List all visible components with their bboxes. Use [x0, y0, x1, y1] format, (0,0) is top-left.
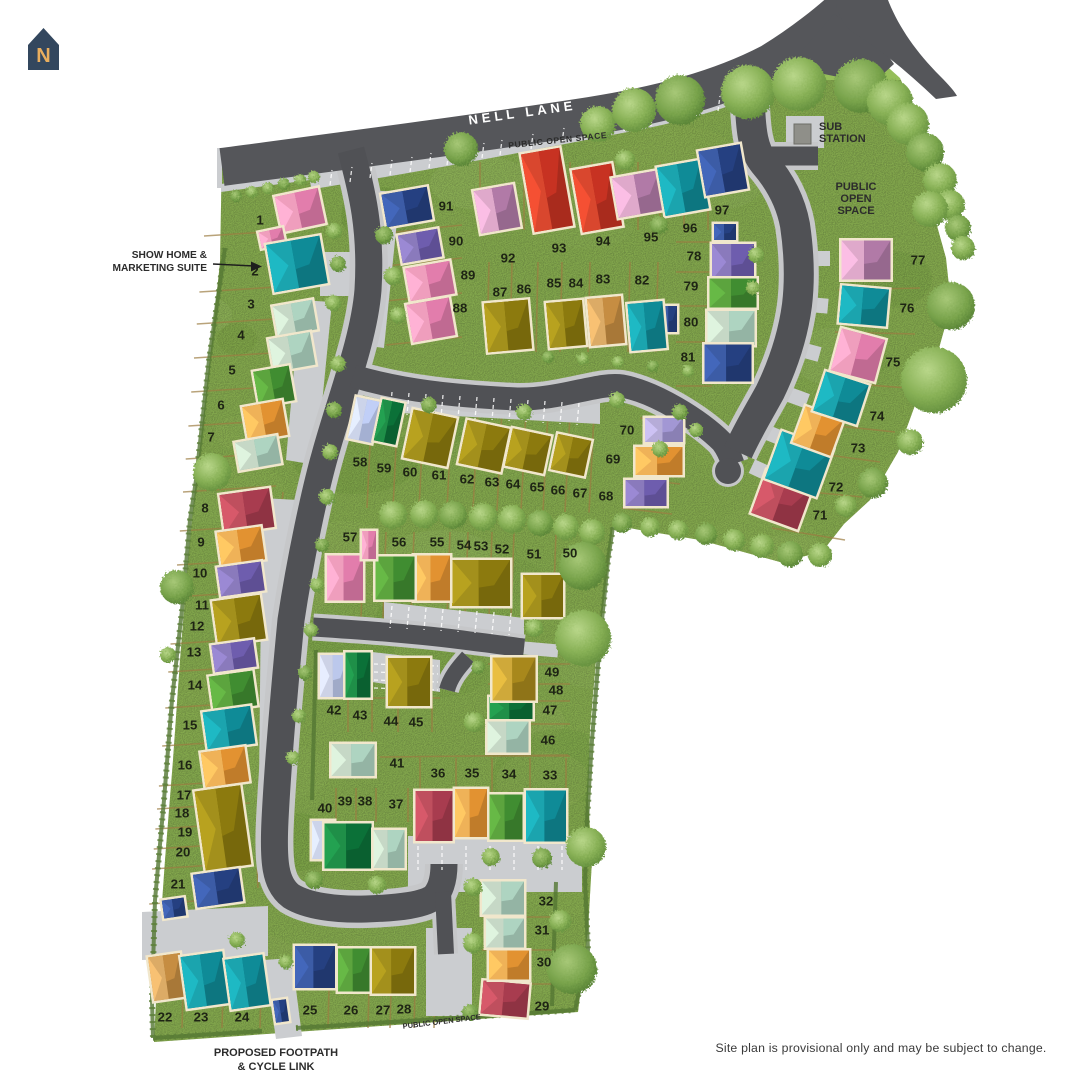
svg-text:12: 12 — [190, 619, 205, 634]
svg-text:STATION: STATION — [819, 133, 866, 145]
svg-text:81: 81 — [681, 350, 696, 365]
svg-text:45: 45 — [409, 715, 424, 730]
svg-text:25: 25 — [303, 1003, 318, 1018]
svg-text:78: 78 — [687, 249, 702, 264]
svg-text:22: 22 — [158, 1010, 173, 1025]
svg-text:PROPOSED FOOTPATH: PROPOSED FOOTPATH — [214, 1047, 338, 1059]
svg-text:52: 52 — [495, 542, 510, 557]
svg-text:51: 51 — [527, 547, 542, 562]
svg-text:77: 77 — [911, 253, 926, 268]
svg-text:63: 63 — [485, 475, 500, 490]
svg-text:76: 76 — [900, 301, 915, 316]
svg-text:95: 95 — [644, 230, 659, 245]
svg-text:10: 10 — [193, 566, 208, 581]
svg-text:34: 34 — [502, 767, 517, 782]
svg-text:91: 91 — [439, 199, 454, 214]
svg-text:55: 55 — [430, 535, 445, 550]
svg-text:48: 48 — [549, 683, 564, 698]
svg-text:80: 80 — [684, 315, 699, 330]
svg-text:PUBLIC: PUBLIC — [836, 181, 877, 193]
svg-text:23: 23 — [194, 1010, 209, 1025]
svg-text:42: 42 — [327, 703, 342, 718]
svg-text:58: 58 — [353, 455, 368, 470]
svg-text:33: 33 — [543, 768, 558, 783]
svg-text:64: 64 — [506, 477, 521, 492]
svg-text:32: 32 — [539, 894, 554, 909]
svg-text:94: 94 — [596, 234, 611, 249]
svg-text:85: 85 — [547, 276, 562, 291]
svg-text:67: 67 — [573, 486, 588, 501]
svg-text:71: 71 — [813, 508, 828, 523]
svg-text:20: 20 — [176, 845, 191, 860]
svg-text:73: 73 — [851, 441, 866, 456]
svg-text:27: 27 — [376, 1003, 391, 1018]
svg-text:17: 17 — [177, 788, 192, 803]
svg-text:86: 86 — [517, 282, 532, 297]
svg-text:SPACE: SPACE — [837, 205, 874, 217]
svg-text:39: 39 — [338, 794, 353, 809]
svg-text:30: 30 — [537, 955, 552, 970]
svg-text:35: 35 — [465, 766, 480, 781]
svg-text:37: 37 — [389, 797, 404, 812]
svg-text:49: 49 — [545, 665, 560, 680]
svg-text:74: 74 — [870, 409, 885, 424]
svg-text:65: 65 — [530, 480, 545, 495]
svg-text:46: 46 — [541, 733, 556, 748]
svg-text:66: 66 — [551, 483, 566, 498]
svg-text:44: 44 — [384, 714, 399, 729]
svg-text:56: 56 — [392, 535, 407, 550]
svg-text:89: 89 — [461, 268, 476, 283]
svg-text:9: 9 — [197, 535, 204, 550]
svg-text:68: 68 — [599, 489, 614, 504]
svg-text:60: 60 — [403, 465, 418, 480]
svg-text:41: 41 — [390, 756, 405, 771]
svg-text:26: 26 — [344, 1003, 359, 1018]
svg-text:11: 11 — [195, 598, 209, 613]
svg-text:1: 1 — [256, 213, 263, 228]
svg-text:72: 72 — [829, 480, 844, 495]
svg-text:38: 38 — [358, 794, 373, 809]
svg-text:29: 29 — [535, 999, 550, 1014]
svg-text:21: 21 — [171, 877, 186, 892]
svg-text:4: 4 — [237, 328, 245, 343]
svg-text:40: 40 — [318, 801, 333, 816]
svg-text:57: 57 — [343, 530, 358, 545]
svg-text:83: 83 — [596, 272, 611, 287]
svg-text:16: 16 — [178, 758, 193, 773]
svg-text:15: 15 — [183, 718, 198, 733]
svg-text:62: 62 — [460, 472, 475, 487]
svg-text:50: 50 — [563, 546, 578, 561]
svg-text:75: 75 — [886, 355, 901, 370]
svg-text:93: 93 — [552, 241, 567, 256]
svg-text:SUB: SUB — [819, 121, 842, 133]
svg-text:54: 54 — [457, 538, 472, 553]
svg-text:OPEN: OPEN — [840, 193, 871, 205]
svg-text:97: 97 — [715, 203, 730, 218]
svg-text:13: 13 — [187, 645, 202, 660]
svg-text:79: 79 — [684, 279, 699, 294]
svg-text:47: 47 — [543, 703, 558, 718]
svg-text:SHOW HOME &: SHOW HOME & — [132, 250, 208, 261]
svg-text:69: 69 — [606, 452, 621, 467]
svg-text:24: 24 — [235, 1010, 250, 1025]
svg-text:43: 43 — [353, 708, 368, 723]
svg-text:8: 8 — [201, 501, 208, 516]
svg-text:31: 31 — [535, 923, 550, 938]
svg-text:92: 92 — [501, 251, 516, 266]
svg-text:61: 61 — [432, 468, 447, 483]
svg-text:96: 96 — [683, 221, 698, 236]
svg-text:19: 19 — [178, 825, 193, 840]
svg-text:7: 7 — [207, 430, 214, 445]
svg-text:84: 84 — [569, 276, 584, 291]
svg-text:14: 14 — [188, 678, 203, 693]
svg-text:82: 82 — [635, 273, 650, 288]
svg-text:& CYCLE LINK: & CYCLE LINK — [238, 1061, 315, 1073]
svg-text:36: 36 — [431, 766, 446, 781]
svg-text:Site plan is provisional only: Site plan is provisional only and may be… — [715, 1041, 1046, 1055]
svg-text:87: 87 — [493, 285, 508, 300]
svg-text:88: 88 — [453, 301, 468, 316]
svg-text:59: 59 — [377, 461, 392, 476]
svg-text:70: 70 — [620, 423, 635, 438]
svg-text:28: 28 — [397, 1002, 412, 1017]
svg-text:6: 6 — [217, 398, 224, 413]
svg-text:N: N — [36, 45, 50, 67]
svg-text:18: 18 — [175, 806, 190, 821]
svg-text:MARKETING SUITE: MARKETING SUITE — [112, 263, 207, 274]
svg-text:90: 90 — [449, 234, 464, 249]
svg-text:53: 53 — [474, 539, 489, 554]
svg-text:3: 3 — [247, 297, 254, 312]
svg-text:5: 5 — [228, 363, 235, 378]
